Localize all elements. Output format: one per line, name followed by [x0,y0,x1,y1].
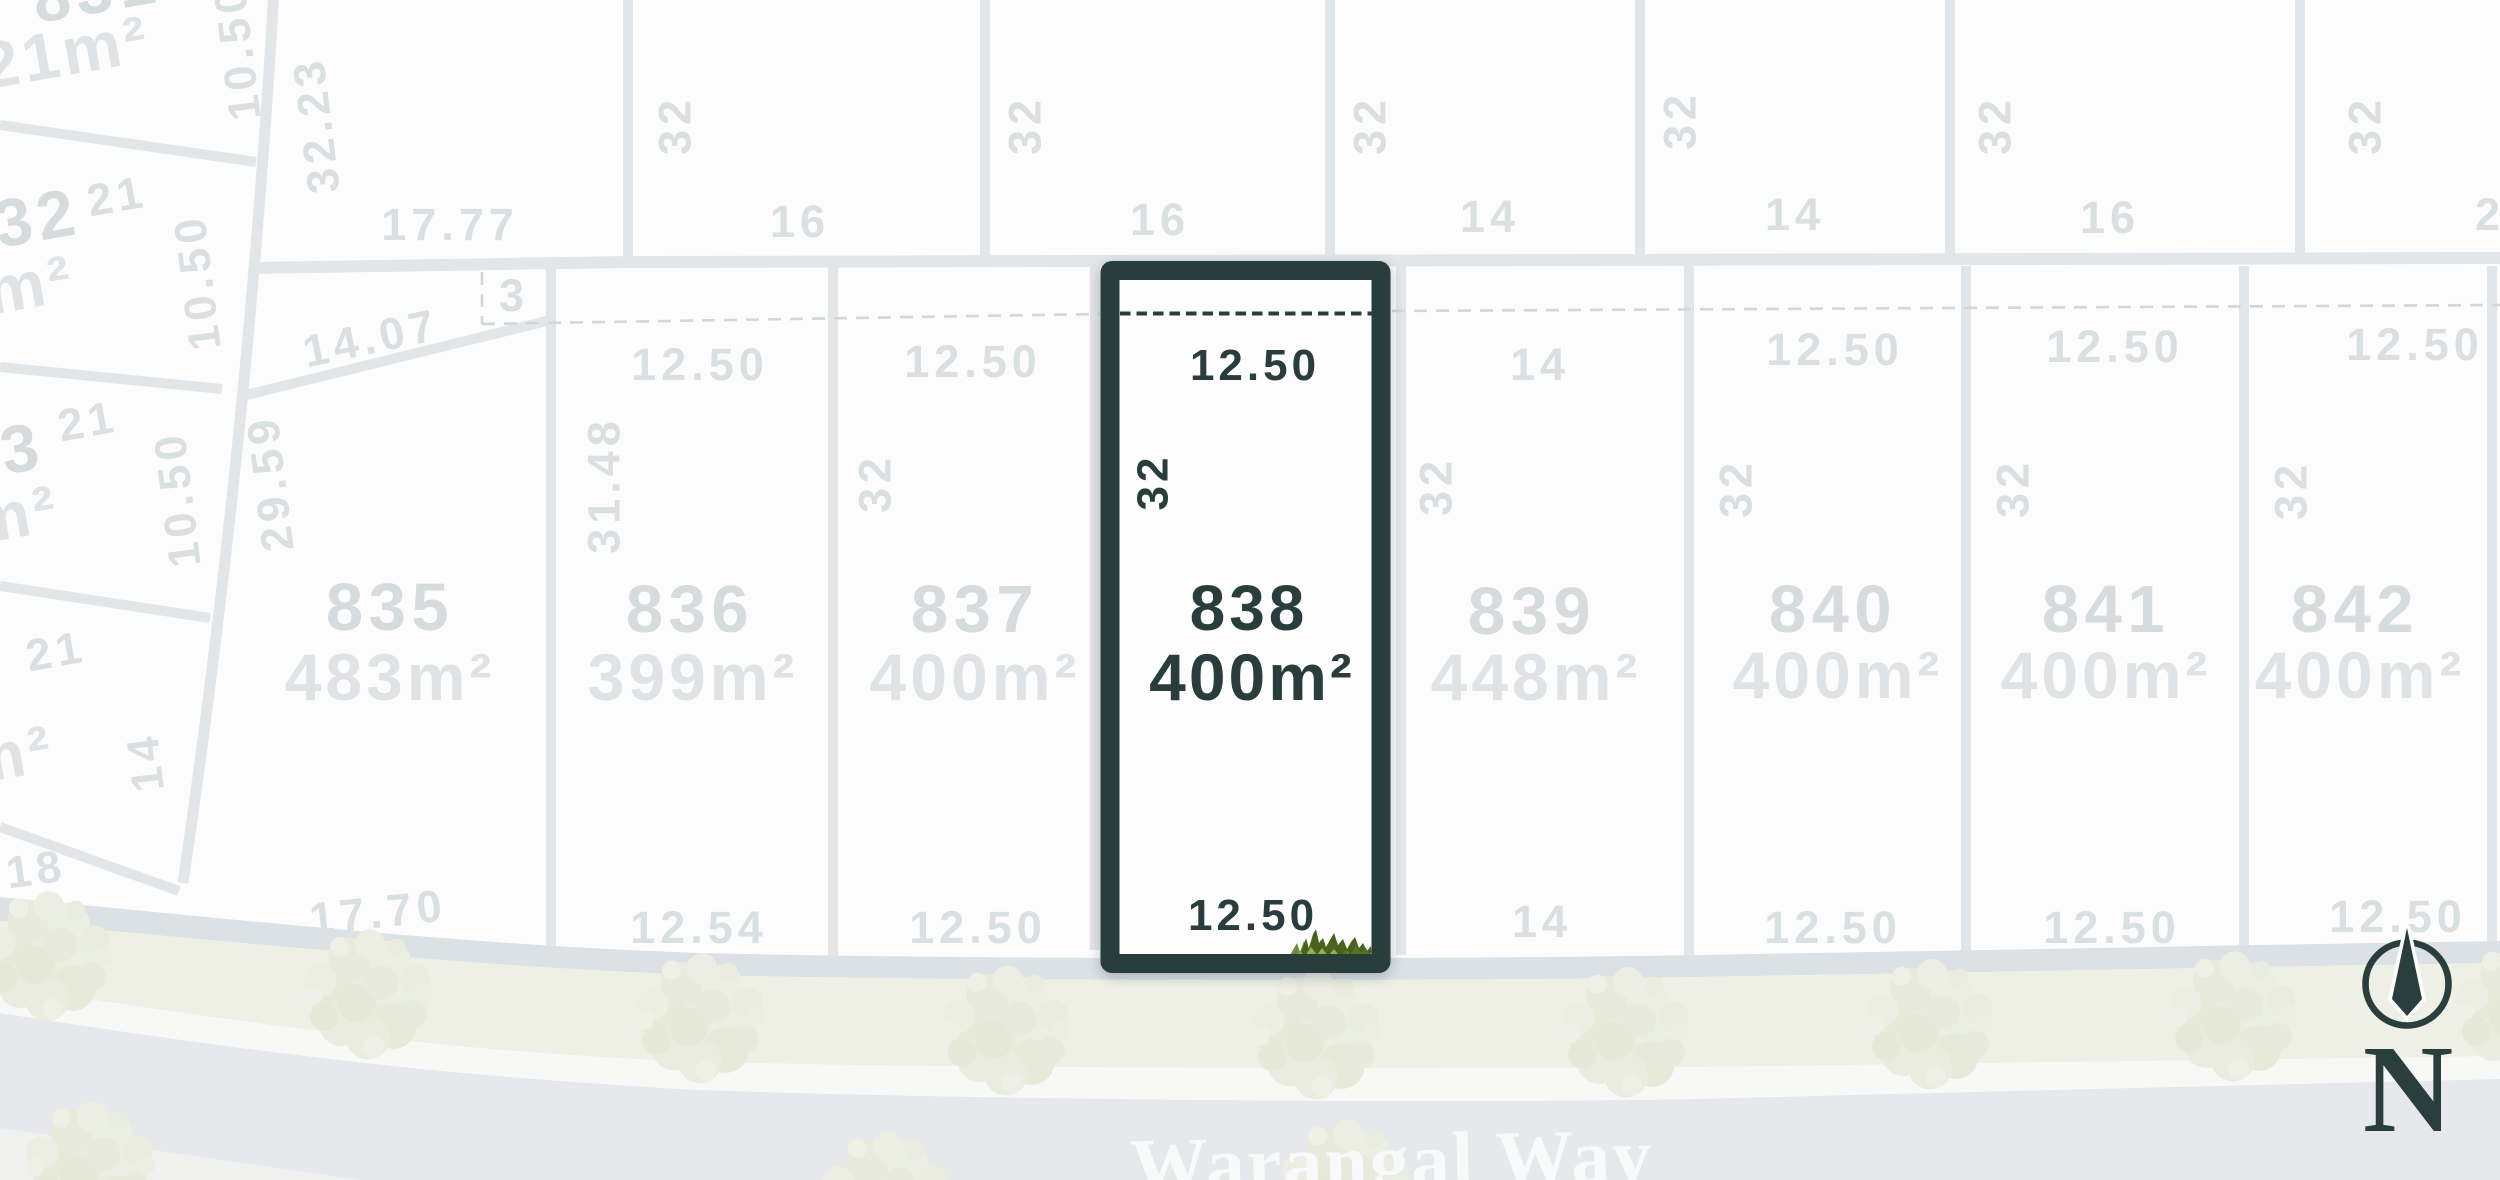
svg-text:3: 3 [499,270,529,321]
svg-text:399m²: 399m² [588,640,799,714]
svg-text:12.54: 12.54 [630,902,768,953]
svg-text:839: 839 [1468,574,1596,649]
svg-text:14: 14 [1460,191,1520,242]
svg-text:16: 16 [770,196,830,247]
svg-text:32: 32 [1000,95,1051,155]
svg-text:16: 16 [2080,192,2140,243]
svg-text:400m²: 400m² [1149,640,1355,714]
svg-text:14: 14 [1512,896,1572,947]
svg-text:32: 32 [1411,456,1462,516]
svg-text:400m²: 400m² [1733,638,1944,712]
svg-text:12.50: 12.50 [1764,902,1902,953]
svg-text:32: 32 [2266,460,2317,520]
svg-text:12.50: 12.50 [2043,902,2181,953]
svg-text:32: 32 [850,453,901,513]
svg-text:32: 32 [2340,95,2391,155]
svg-text:21: 21 [54,391,122,452]
svg-text:14: 14 [1765,189,1825,240]
svg-text:32: 32 [1988,458,2039,518]
svg-text:400m²: 400m² [2255,638,2466,712]
svg-text:400m²: 400m² [2001,638,2212,712]
svg-text:835: 835 [326,570,454,645]
svg-text:12.50: 12.50 [1188,891,1318,940]
svg-text:837: 837 [911,572,1039,647]
svg-text:12.50: 12.50 [904,336,1042,387]
svg-text:21: 21 [22,621,90,682]
svg-text:400m²: 400m² [870,640,1081,714]
svg-text:12.50: 12.50 [909,902,1047,953]
svg-text:840: 840 [1769,572,1897,647]
svg-text:448m²: 448m² [1431,640,1642,714]
svg-text:N: N [2363,1021,2453,1159]
svg-text:22: 22 [2475,189,2500,240]
svg-text:836: 836 [626,572,754,647]
svg-text:32: 32 [1655,90,1706,150]
svg-text:842: 842 [2291,572,2419,647]
svg-text:31.48: 31.48 [579,416,630,554]
svg-text:838: 838 [1190,572,1309,644]
svg-text:32: 32 [650,95,701,155]
svg-text:12.50: 12.50 [2346,319,2484,370]
svg-text:14: 14 [1510,339,1570,390]
svg-text:841: 841 [2042,572,2170,647]
svg-text:32: 32 [1129,454,1178,511]
svg-text:12.50: 12.50 [1766,324,1904,375]
svg-text:32: 32 [1970,95,2021,155]
svg-text:12.50: 12.50 [2329,891,2467,942]
svg-text:17.77: 17.77 [381,199,519,250]
svg-text:32: 32 [1711,458,1762,518]
svg-text:21: 21 [83,166,151,227]
svg-text:12.50: 12.50 [631,339,769,390]
svg-text:14: 14 [116,729,174,795]
svg-text:Warangal Way: Warangal Way [1129,1112,1654,1180]
svg-text:32: 32 [1345,95,1396,155]
svg-text:18: 18 [3,840,70,899]
svg-text:483m²: 483m² [285,640,496,714]
svg-text:12.50: 12.50 [1190,341,1320,390]
svg-text:16: 16 [1130,194,1190,245]
svg-text:12.50: 12.50 [2046,321,2184,372]
